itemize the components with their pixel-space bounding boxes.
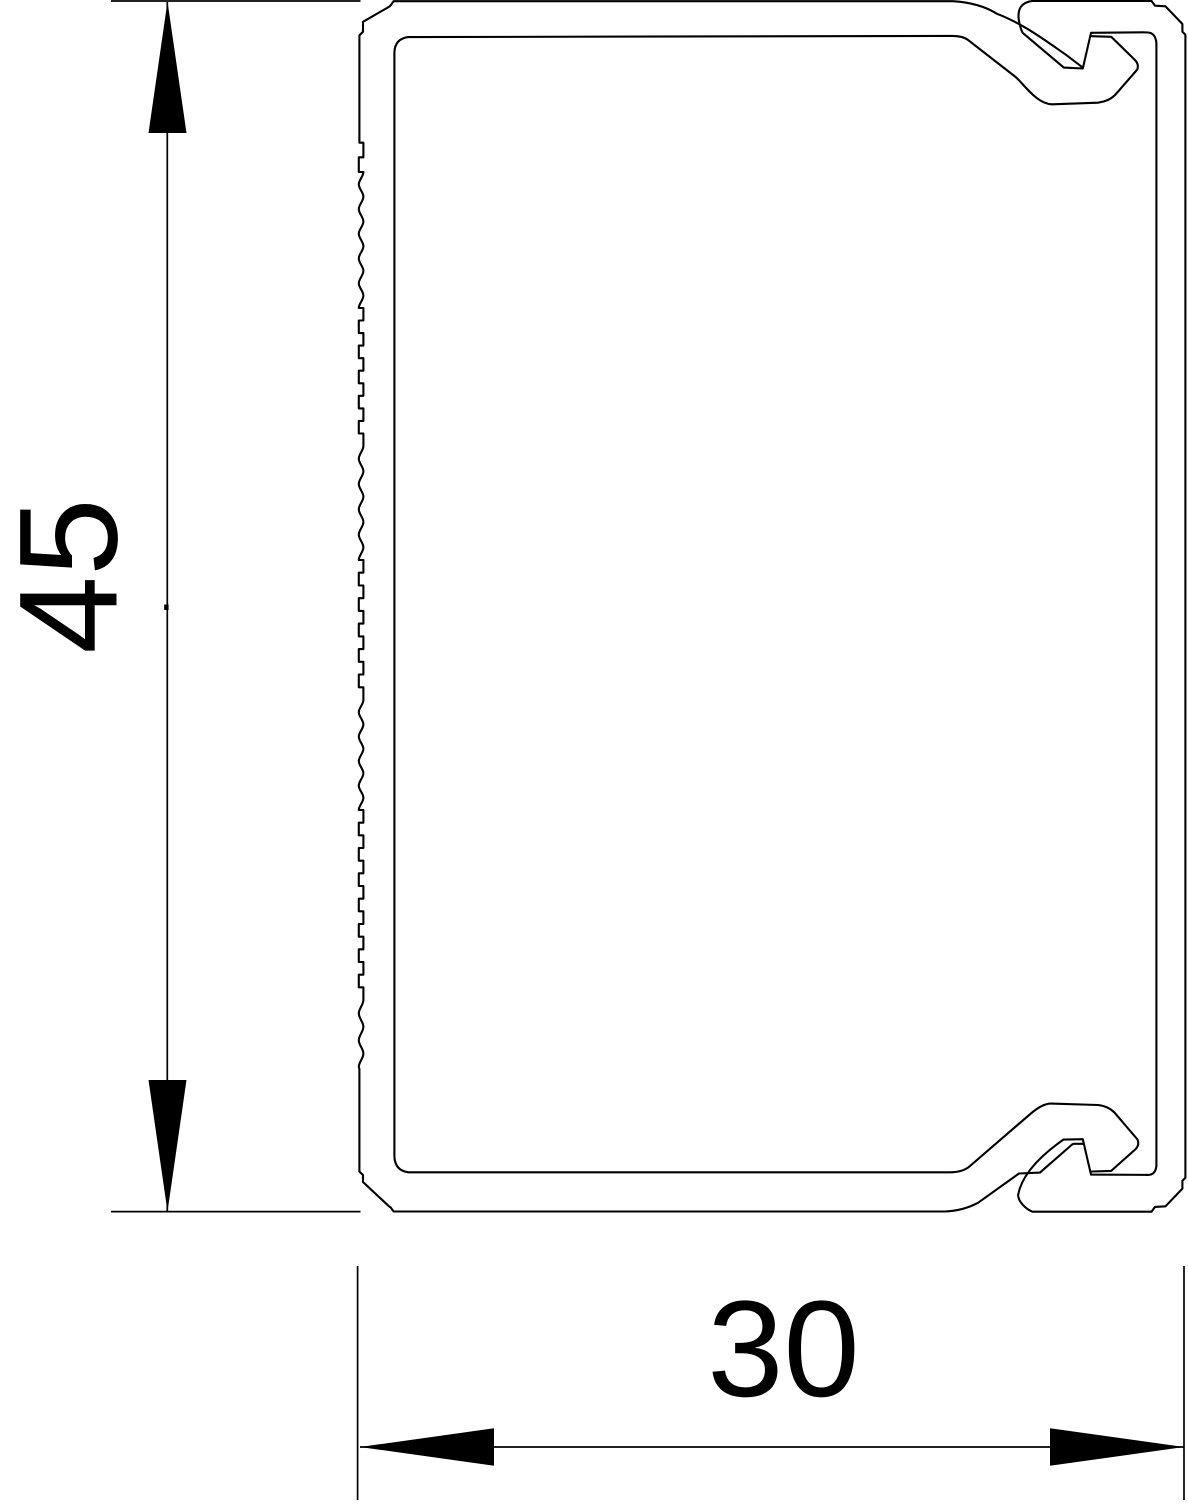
svg-text:30: 30 [707,1273,859,1426]
svg-text:45: 45 [0,498,147,654]
